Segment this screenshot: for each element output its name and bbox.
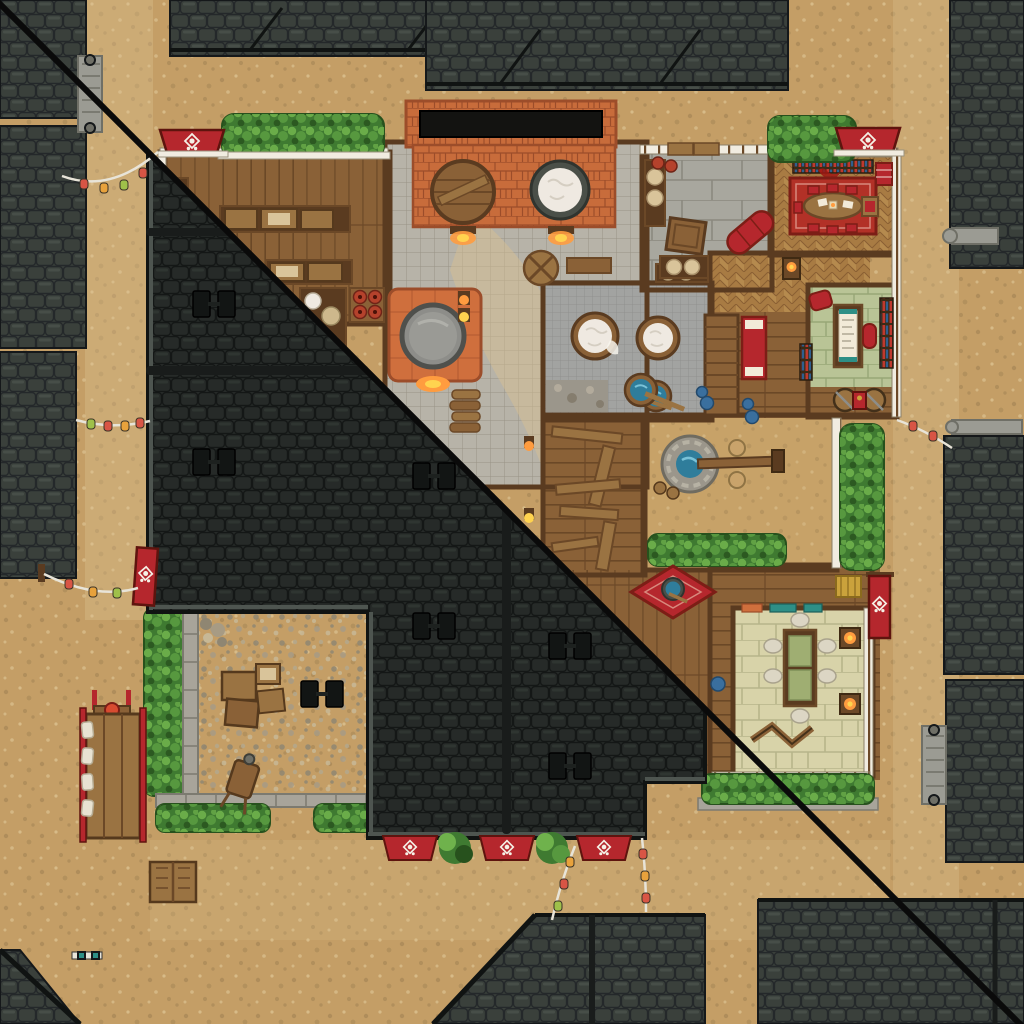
- threshold-tray-3: [804, 604, 822, 612]
- noren-banner-1: [383, 836, 437, 860]
- storefront-hedge: [218, 114, 390, 159]
- map-canvas: Top-down tabletop battle map of a Japane…: [0, 0, 1024, 1024]
- roof-west-lower: [0, 352, 76, 578]
- courtyard-hedge: [648, 534, 786, 566]
- dock-east: [922, 725, 946, 805]
- awning-northeast: [834, 128, 904, 156]
- armor-alcove: [834, 389, 885, 411]
- bucket-2: [667, 487, 679, 499]
- rice-tub-1: [572, 313, 618, 359]
- dining-table: [804, 193, 862, 219]
- well-pulley-post: [772, 450, 784, 472]
- head-seat: [862, 197, 878, 216]
- roof-corner-banner: [133, 547, 158, 605]
- gutter-pipe-east: [946, 420, 1022, 434]
- lantern-pole: [38, 564, 45, 582]
- rice-tub-2: [637, 317, 679, 359]
- bench: [567, 258, 611, 273]
- hearth-cauldron: [389, 289, 481, 392]
- kiln-chimney: [406, 101, 616, 147]
- noren-banner-3: [577, 836, 631, 860]
- battle-map: Top-down tabletop battle map of a Japane…: [0, 0, 1024, 1024]
- wall-southeast: [758, 900, 1024, 1024]
- red-futon: [742, 317, 766, 379]
- awning-northwest: [158, 130, 228, 157]
- wall-lantern-banquet-2: [840, 694, 860, 714]
- entry-double-door: [668, 143, 719, 155]
- noren-banner-2: [480, 836, 534, 860]
- covered-vat: [432, 161, 494, 223]
- east-wall-hedge: [840, 424, 884, 570]
- hand-cart: [80, 690, 146, 842]
- banner-southeast: [866, 572, 894, 638]
- brazier: [783, 258, 800, 279]
- bookshelf-east: [880, 298, 893, 368]
- striped-pole: [72, 952, 102, 959]
- blue-bowl-1: [743, 399, 754, 410]
- writing-desk: [834, 305, 862, 367]
- counterweight-2: [729, 472, 745, 488]
- threshold-tray-1: [742, 604, 762, 612]
- rice-vat: [531, 161, 589, 219]
- entry-crate: [666, 218, 706, 255]
- threshold-tray-2: [770, 604, 796, 612]
- bucket-1: [654, 482, 666, 494]
- roof-north-2: [426, 0, 788, 90]
- yard-wall-west: [183, 606, 198, 800]
- arm-rest: [863, 324, 876, 348]
- well-sweep-beam: [698, 457, 778, 469]
- clay-pots: [350, 288, 384, 322]
- counterweight-1: [729, 440, 745, 456]
- brick-vat-platform: [413, 145, 615, 227]
- bookshelf-west: [800, 344, 812, 380]
- roof-east-lower: [946, 680, 1024, 862]
- barrel: [524, 251, 558, 285]
- blue-bowl-2: [746, 411, 759, 424]
- wall-lantern-banquet-1: [840, 628, 860, 648]
- low-table: [784, 630, 816, 706]
- porch-bowl: [711, 677, 725, 691]
- gutter-pipe-northeast: [943, 228, 998, 244]
- roof-west-upper: [0, 126, 86, 348]
- sack-bench: [660, 256, 708, 278]
- stall-table: [150, 862, 196, 902]
- red-chest: [876, 163, 892, 185]
- roof-east-upper: [944, 436, 1024, 674]
